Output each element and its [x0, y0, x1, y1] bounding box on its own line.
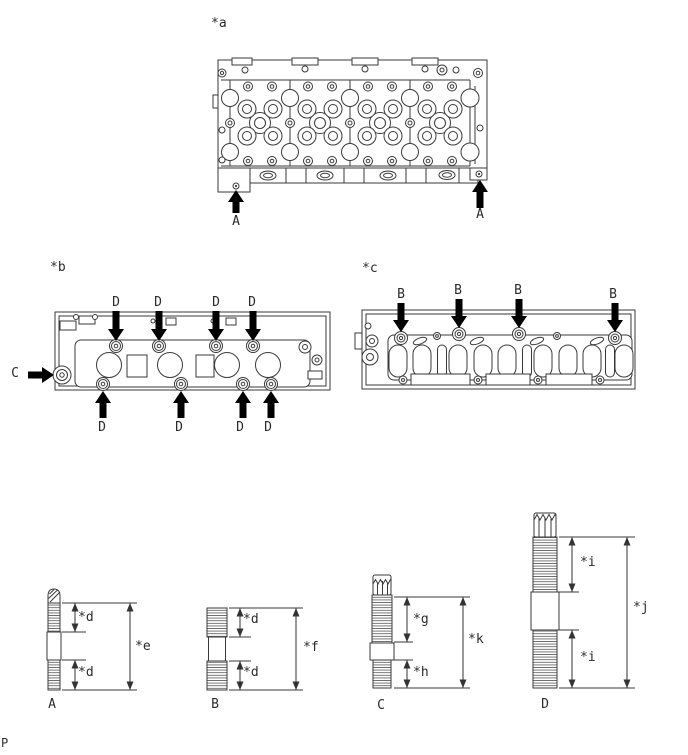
callout-d-bottom-1: D [98, 421, 106, 434]
arrow-a-right [472, 180, 488, 208]
dim-label-b-overall: *f [303, 641, 319, 654]
callout-b-1: B [397, 288, 405, 301]
page-marker: P [1, 737, 8, 750]
callout-d-top-3: D [212, 296, 220, 309]
stud-a-label: A [48, 698, 56, 711]
dim-label-d-lower: *i [580, 651, 596, 664]
arrow-d-bottom-2 [173, 391, 189, 418]
cylinder-head-exhaust-side-drawing [26, 295, 338, 423]
cylinder-head-top-view-drawing [213, 56, 491, 226]
dim-label-a-upper: *d [78, 611, 94, 624]
callout-b-3: B [514, 284, 522, 297]
callout-d-top-1: D [112, 296, 120, 309]
callout-a-right: A [476, 208, 484, 221]
stud-b-label: B [211, 698, 219, 711]
stud-d-label: D [541, 698, 549, 711]
fig-a-tag: *a [211, 17, 227, 30]
callout-d-top-2: D [154, 296, 162, 309]
dim-label-a-overall: *e [135, 640, 151, 653]
callout-b-2: B [454, 284, 462, 297]
callout-d-bottom-2: D [175, 421, 183, 434]
dim-label-c-overall: *k [468, 633, 484, 646]
arrow-d-bottom-4 [263, 391, 279, 418]
arrow-c-left [28, 367, 54, 383]
callout-b-4: B [609, 288, 617, 301]
arrow-a-left [228, 190, 244, 213]
arrow-d-bottom-3 [235, 391, 251, 418]
callout-d-bottom-3: D [236, 421, 244, 434]
dim-label-b-lower: *d [243, 666, 259, 679]
arrow-d-bottom-1 [95, 391, 111, 418]
dim-label-c-upper: *g [413, 613, 429, 626]
fig-b-tag: *b [50, 261, 66, 274]
dim-label-d-upper: *i [580, 556, 596, 569]
callout-d-top-4: D [248, 296, 256, 309]
dim-label-d-overall: *j [633, 601, 649, 614]
fig-c-tag: *c [362, 262, 378, 275]
stud-c-label: C [377, 699, 385, 712]
dim-label-c-lower: *h [413, 666, 429, 679]
dim-label-a-lower: *d [78, 666, 94, 679]
callout-c: C [11, 367, 19, 380]
manual-illustration-page: *a [0, 0, 688, 755]
dim-label-b-upper: *d [243, 613, 259, 626]
callout-a-left: A [232, 215, 240, 228]
stud-bolt-dimension-drawings [38, 505, 653, 697]
cylinder-head-intake-side-drawing [355, 295, 655, 395]
callout-d-bottom-4: D [264, 421, 272, 434]
